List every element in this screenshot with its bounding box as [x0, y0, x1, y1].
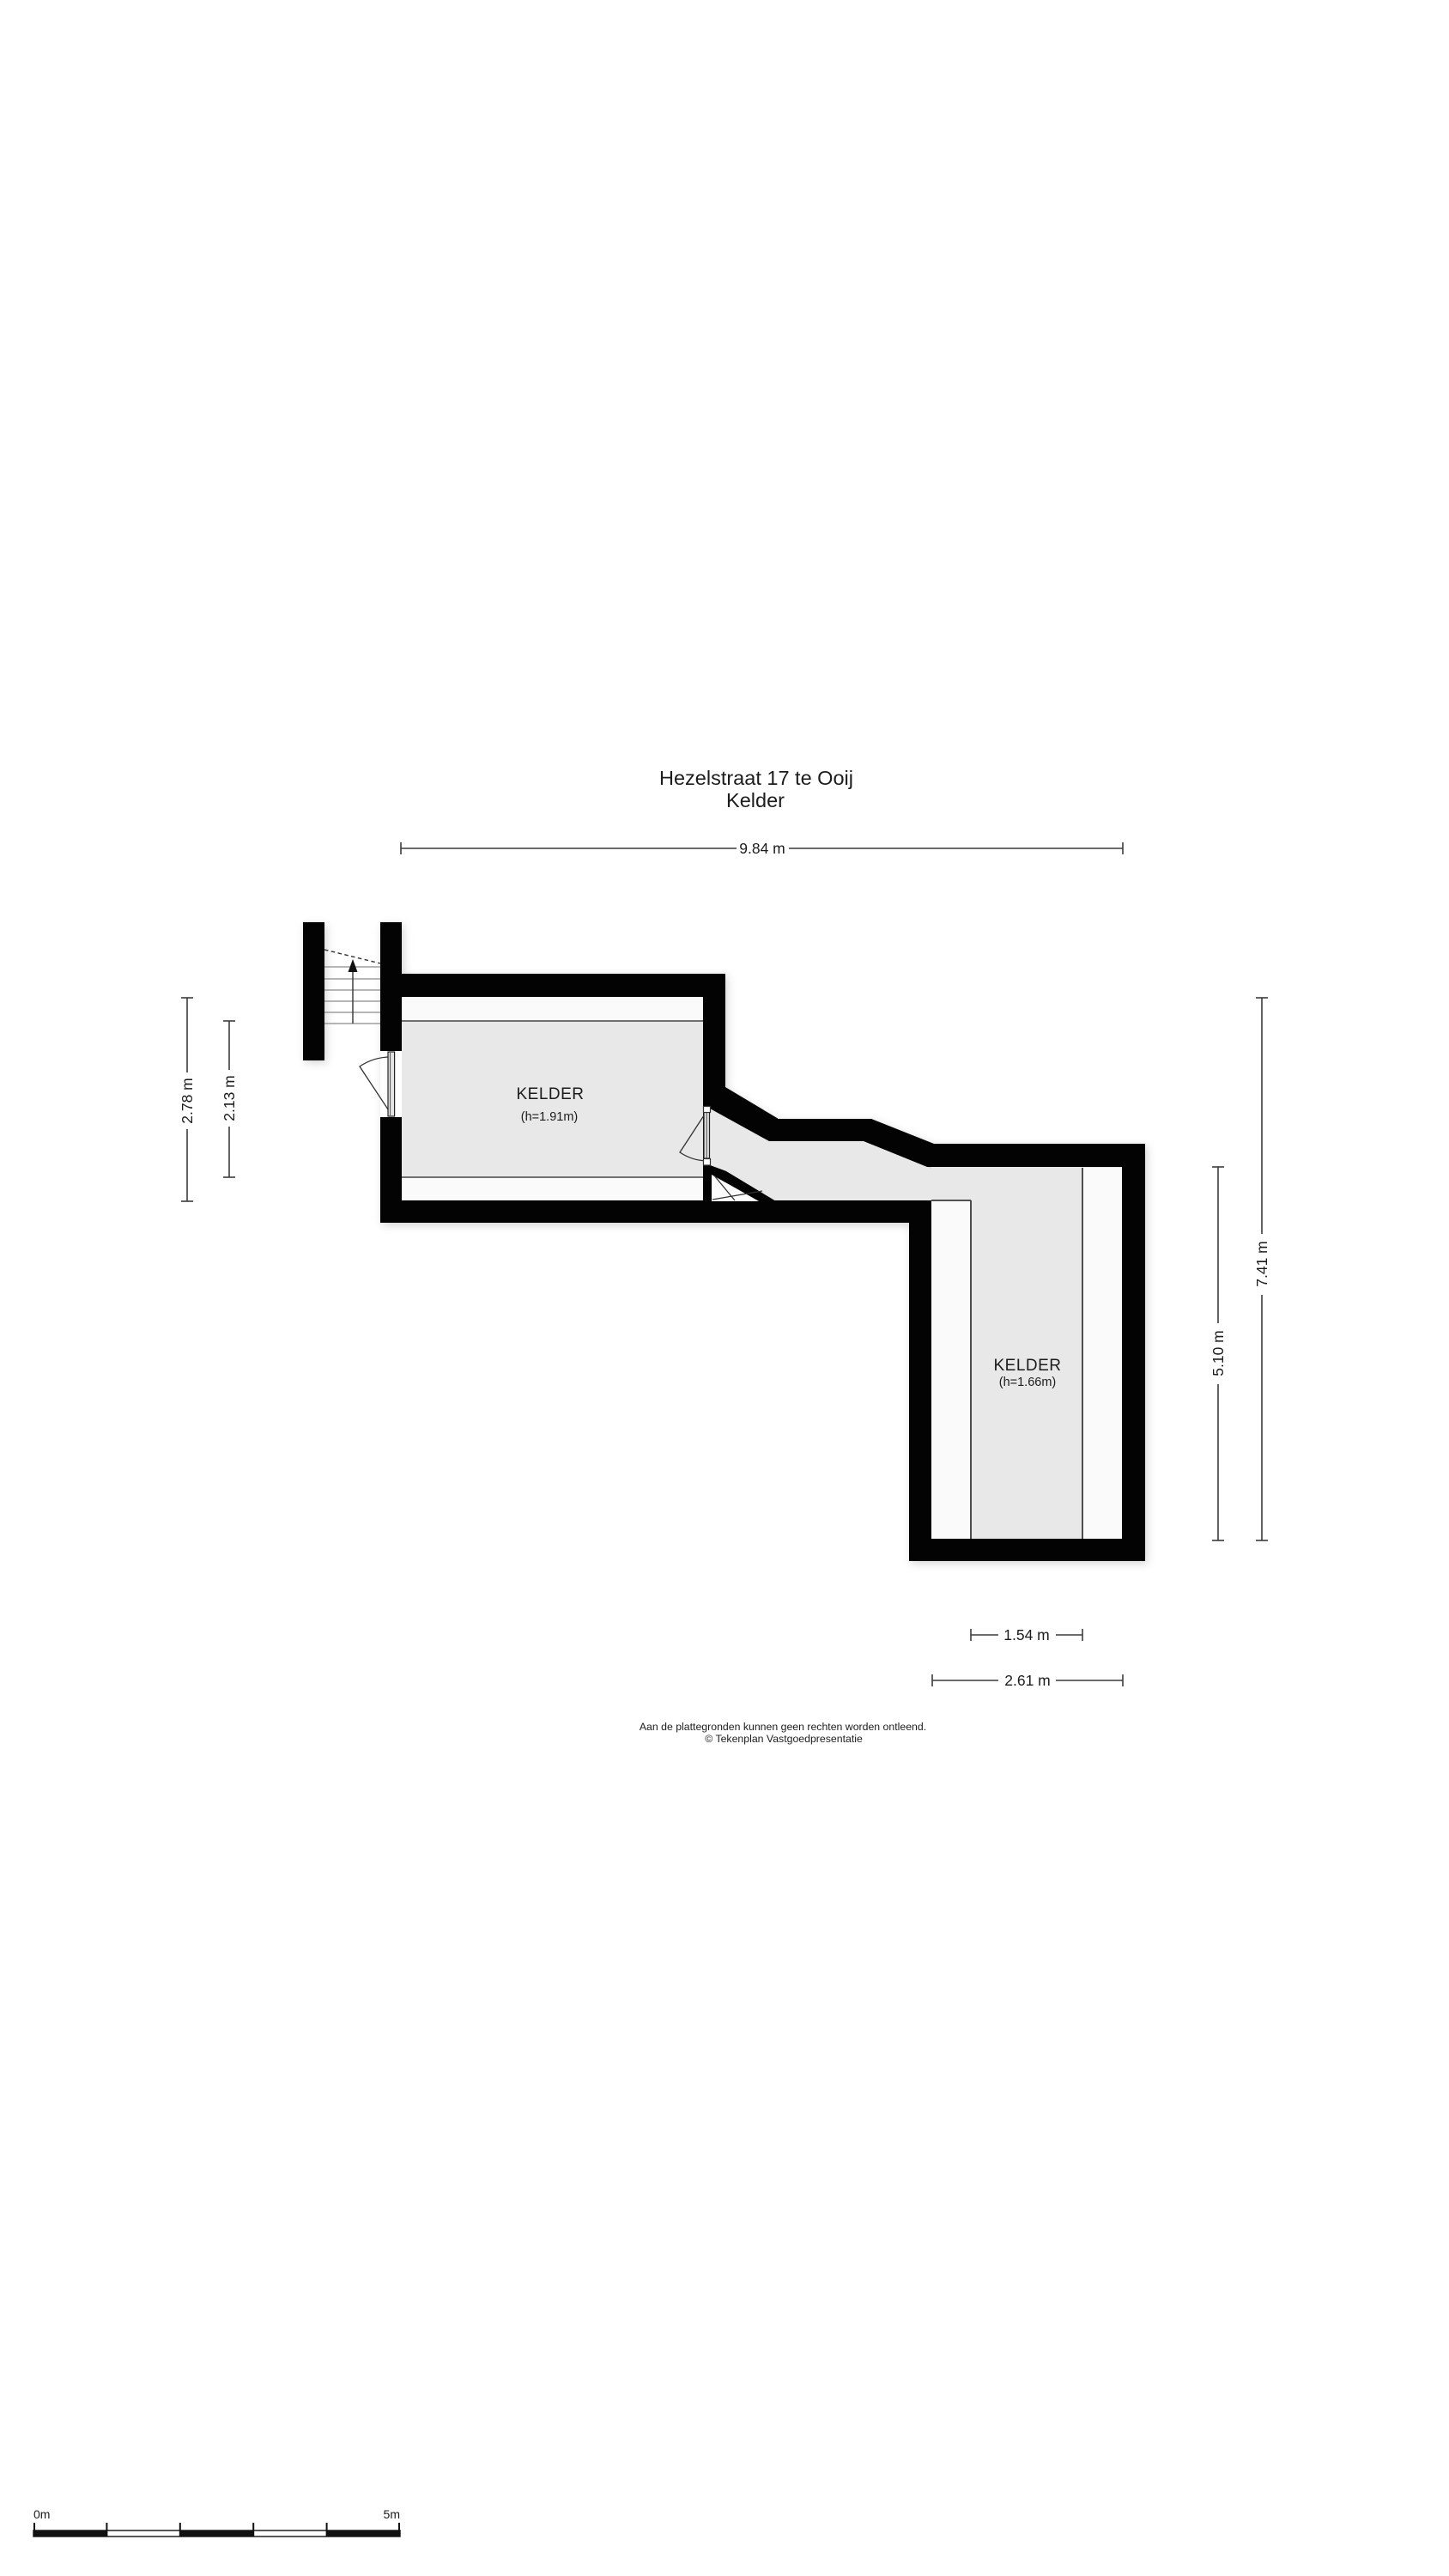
svg-text:5m: 5m [384, 2507, 400, 2521]
svg-text:2.61 m: 2.61 m [1004, 1672, 1051, 1689]
svg-text:1.54 m: 1.54 m [1003, 1626, 1050, 1643]
svg-text:© Tekenplan Vastgoedpresentati: © Tekenplan Vastgoedpresentatie [705, 1733, 863, 1745]
svg-text:(h=1.91m): (h=1.91m) [521, 1110, 579, 1124]
svg-text:(h=1.66m): (h=1.66m) [999, 1376, 1057, 1389]
svg-text:2.13 m: 2.13 m [221, 1075, 238, 1121]
svg-text:Aan de plattegronden kunnen ge: Aan de plattegronden kunnen geen rechten… [640, 1721, 926, 1733]
svg-text:Kelder: Kelder [726, 789, 785, 811]
svg-text:KELDER: KELDER [516, 1085, 584, 1103]
svg-text:KELDER: KELDER [993, 1357, 1061, 1375]
svg-text:5.10 m: 5.10 m [1210, 1330, 1227, 1376]
svg-text:0m: 0m [33, 2507, 50, 2521]
svg-text:Hezelstraat 17 te Ooij: Hezelstraat 17 te Ooij [659, 767, 853, 789]
svg-text:2.78 m: 2.78 m [179, 1078, 196, 1124]
svg-text:7.41 m: 7.41 m [1253, 1241, 1270, 1287]
svg-text:9.84 m: 9.84 m [739, 840, 785, 857]
